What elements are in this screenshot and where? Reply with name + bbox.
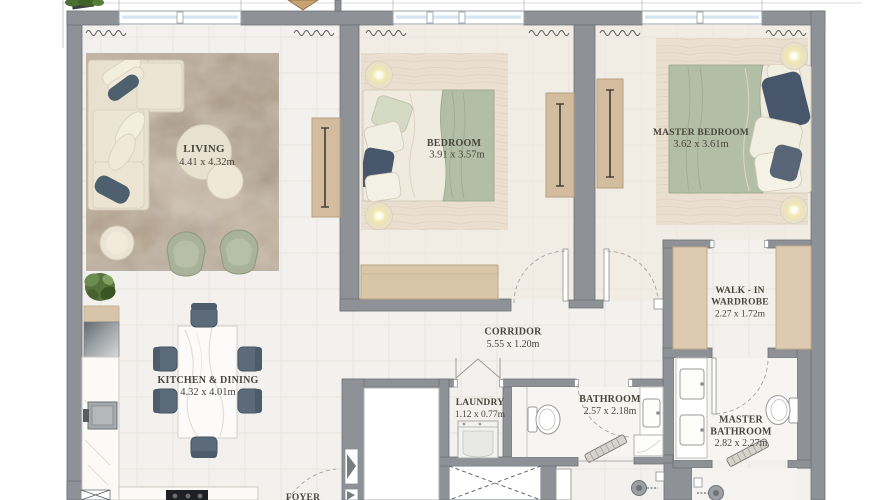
svg-text:BATHROOM: BATHROOM [579, 394, 641, 405]
svg-text:3.91 x 3.57m: 3.91 x 3.57m [429, 150, 484, 161]
svg-text:MASTER: MASTER [719, 415, 764, 426]
svg-text:1.12 x 0.77m: 1.12 x 0.77m [455, 410, 506, 420]
svg-text:KITCHEN & DINING: KITCHEN & DINING [158, 375, 259, 386]
svg-text:LAUNDRY: LAUNDRY [456, 398, 505, 408]
svg-text:2.57 x 2.18m: 2.57 x 2.18m [584, 406, 637, 417]
svg-text:MASTER BEDROOM: MASTER BEDROOM [653, 128, 749, 138]
svg-text:WARDROBE: WARDROBE [711, 298, 769, 308]
svg-text:WALK - IN: WALK - IN [715, 286, 764, 296]
svg-text:2.27 x 1.72m: 2.27 x 1.72m [715, 310, 766, 320]
svg-text:CORRIDOR: CORRIDOR [484, 327, 542, 338]
svg-text:5.55 x 1.20m: 5.55 x 1.20m [487, 339, 540, 350]
svg-text:4.32 x 4.01m: 4.32 x 4.01m [180, 387, 235, 398]
svg-text:BEDROOM: BEDROOM [427, 138, 482, 149]
svg-text:2.82 x 2.27m: 2.82 x 2.27m [715, 438, 768, 449]
svg-text:FOYER: FOYER [286, 493, 320, 500]
svg-text:LIVING: LIVING [183, 143, 225, 155]
svg-text:BATHROOM: BATHROOM [710, 427, 772, 438]
svg-text:4.41 x 4.32m: 4.41 x 4.32m [179, 157, 234, 168]
svg-text:3.62 x 3.61m: 3.62 x 3.61m [673, 139, 728, 150]
